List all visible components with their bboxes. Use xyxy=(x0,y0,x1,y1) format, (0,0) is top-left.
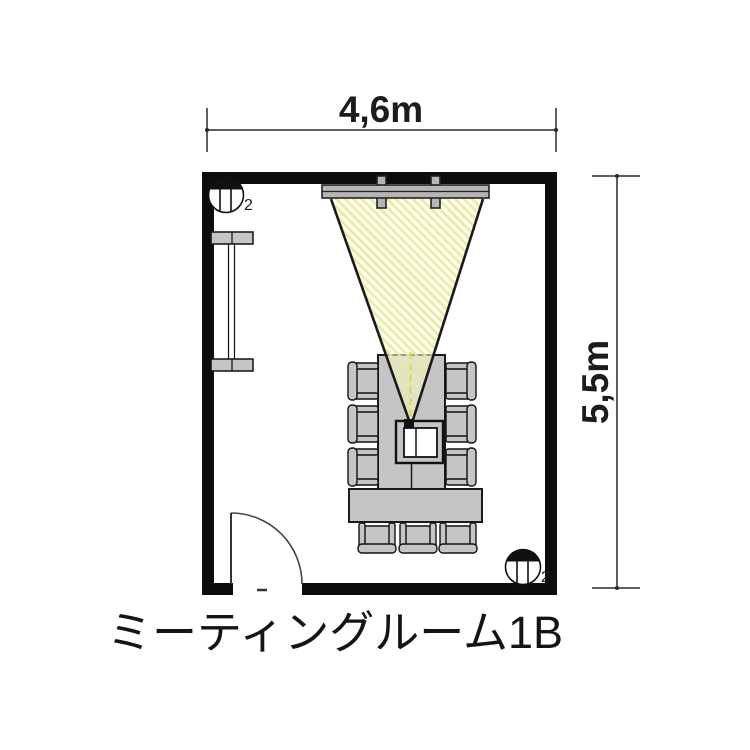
chair xyxy=(348,362,378,400)
chair-backrest xyxy=(399,544,437,553)
light-count-label: 2 xyxy=(244,197,253,214)
floor-plan: 2 2 4,6m 5,5m ミーティングルーム1B xyxy=(0,0,750,750)
dimension-width: 4,6m xyxy=(205,89,558,152)
chair-seat xyxy=(355,367,378,395)
chair-backrest xyxy=(348,405,357,443)
projector xyxy=(396,419,443,463)
height-dimension-label: 5,5m xyxy=(575,340,616,424)
whiteboard xyxy=(211,232,253,371)
chair-backrest xyxy=(439,544,477,553)
dimension-end-dot xyxy=(554,128,558,132)
chair xyxy=(348,405,378,443)
chair-seat xyxy=(446,410,469,438)
chair-seat xyxy=(446,453,469,481)
chair xyxy=(446,448,476,486)
chair xyxy=(446,405,476,443)
chair xyxy=(439,523,477,553)
width-dimension-label: 4,6m xyxy=(339,89,423,130)
chair-backrest xyxy=(467,448,476,486)
ceiling-light-bottom-right: 2 xyxy=(506,550,551,587)
light-cap xyxy=(506,550,539,562)
chair-seat xyxy=(355,453,378,481)
chair-seat xyxy=(355,410,378,438)
door-swing-arc xyxy=(231,513,302,584)
chair xyxy=(358,523,396,553)
dimension-height: 5,5m xyxy=(575,174,640,590)
dimension-end-dot xyxy=(615,174,619,178)
chair-backrest xyxy=(467,362,476,400)
chair-backrest xyxy=(348,448,357,486)
wall-bottom-left-stub xyxy=(202,583,233,595)
chair-backrest xyxy=(348,362,357,400)
dimension-end-dot xyxy=(205,128,209,132)
chair xyxy=(399,523,437,553)
chair xyxy=(446,362,476,400)
wall-bottom-right xyxy=(302,583,557,595)
floor-plan-drawing: 2 2 4,6m 5,5m ミーティングルーム1B xyxy=(0,0,750,750)
room-name-label: ミーティングルーム1B xyxy=(107,607,563,658)
projector-top-panel xyxy=(404,428,437,457)
table-end xyxy=(349,489,482,522)
chair-seat xyxy=(446,367,469,395)
chair-backrest xyxy=(358,544,396,553)
door xyxy=(231,513,302,590)
dimension-end-dot xyxy=(615,586,619,590)
wall-right xyxy=(545,172,557,595)
chair-backrest xyxy=(467,405,476,443)
light-count-label: 2 xyxy=(541,569,550,586)
chair xyxy=(348,448,378,486)
